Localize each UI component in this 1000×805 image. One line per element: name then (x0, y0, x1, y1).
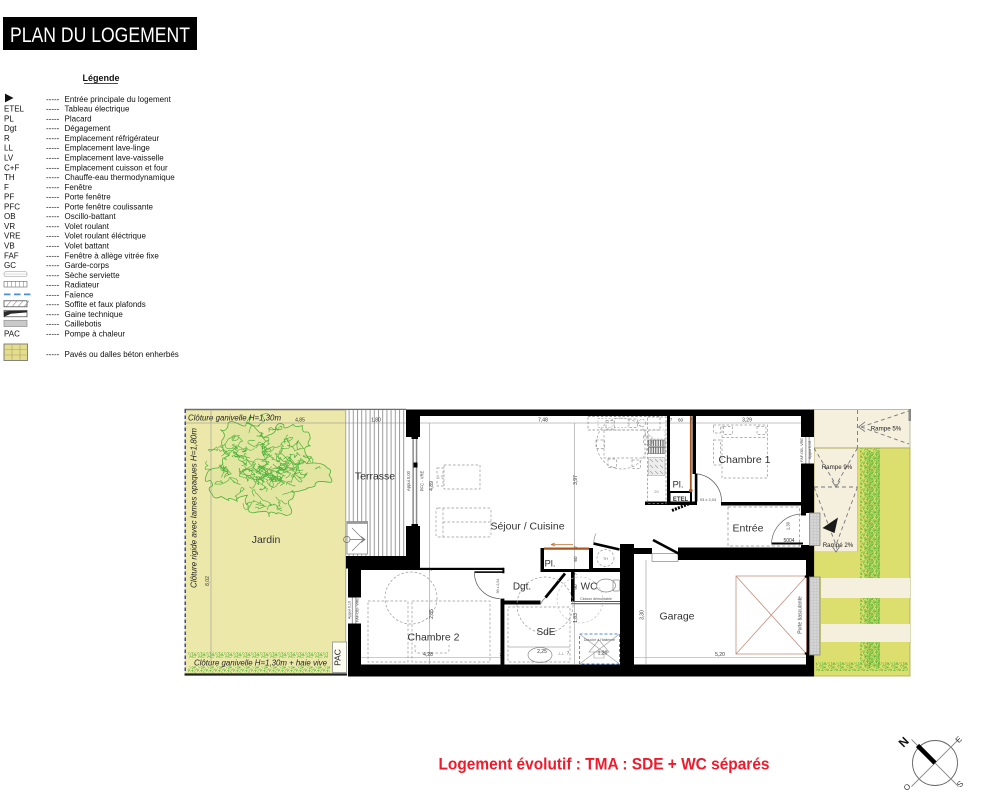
svg-text:2,25: 2,25 (537, 649, 547, 655)
svg-text:LL: LL (4, 144, 13, 153)
svg-text:Porte fenêtre: Porte fenêtre (65, 193, 112, 202)
svg-text:WC: WC (581, 582, 598, 593)
svg-text:FAF: FAF (4, 251, 19, 260)
svg-text:Appui 0,00: Appui 0,00 (406, 470, 411, 491)
svg-text:GC: GC (4, 261, 16, 270)
svg-text:-----: ----- (46, 330, 60, 339)
svg-text:Chauffe-eau thermodynamique: Chauffe-eau thermodynamique (65, 173, 176, 182)
svg-text:Emplacement cuisson et four: Emplacement cuisson et four (65, 163, 168, 172)
svg-text:Radiateur: Radiateur (65, 281, 100, 290)
svg-text:Cloison démontable: Cloison démontable (580, 597, 612, 601)
svg-text:Pl.: Pl. (544, 559, 555, 570)
svg-text:-----: ----- (46, 222, 60, 231)
svg-text:Faïence: Faïence (65, 290, 94, 299)
svg-text:-----: ----- (46, 124, 60, 133)
svg-text:Dgt: Dgt (4, 124, 17, 133)
svg-text:90: 90 (573, 584, 578, 590)
svg-text:-----: ----- (46, 290, 60, 299)
svg-text:Placard: Placard (65, 114, 92, 123)
svg-text:-----: ----- (46, 320, 60, 329)
svg-text:60: 60 (678, 418, 684, 423)
svg-text:4,85: 4,85 (295, 418, 305, 424)
svg-text:PLAN DU LOGEMENT: PLAN DU LOGEMENT (10, 24, 190, 47)
svg-text:-----: ----- (46, 153, 60, 162)
svg-text:Sèche serviette: Sèche serviette (65, 271, 121, 280)
svg-text:Pompe à chaleur: Pompe à chaleur (65, 330, 126, 339)
svg-text:PFC: PFC (4, 202, 20, 211)
svg-text:Rampe 5%: Rampe 5% (871, 426, 902, 433)
svg-text:-----: ----- (46, 193, 60, 202)
svg-text:Garage: Garage (659, 611, 694, 623)
svg-text:Douche à l’italienne: Douche à l’italienne (584, 638, 615, 642)
svg-text:Pavés ou dalles béton enherbés: Pavés ou dalles béton enherbés (65, 350, 179, 359)
svg-text:Entrée: Entrée (733, 523, 764, 535)
svg-text:Appui 0,10: Appui 0,10 (348, 601, 352, 619)
svg-text:-----: ----- (46, 310, 60, 319)
svg-text:PF: PF (4, 193, 14, 202)
svg-text:-----: ----- (46, 144, 60, 153)
svg-text:Fenêtre: Fenêtre (65, 183, 93, 192)
svg-text:TH: TH (603, 556, 608, 561)
svg-text:TH: TH (4, 173, 15, 182)
svg-text:Jardin: Jardin (252, 534, 281, 546)
svg-text:-----: ----- (46, 281, 60, 290)
svg-text:3,97: 3,97 (573, 475, 579, 485)
svg-text:FAF-OB- VRE: FAF-OB- VRE (800, 438, 804, 462)
svg-text:90 x 2,04: 90 x 2,04 (496, 579, 500, 594)
svg-text:Emplacement lave-linge: Emplacement lave-linge (65, 144, 151, 153)
svg-text:Clôture ganivelle H=1,30m + ha: Clôture ganivelle H=1,30m + haie vive (194, 658, 327, 668)
svg-text:Clôture ganivelle H=1,30m: Clôture ganivelle H=1,30m (188, 413, 281, 423)
svg-text:Volet battant: Volet battant (65, 242, 110, 251)
svg-text:Rampe 9%: Rampe 9% (822, 464, 853, 471)
svg-text:VB: VB (4, 242, 15, 251)
svg-text:1,20: 1,20 (598, 651, 608, 657)
svg-text:-----: ----- (46, 212, 60, 221)
svg-text:3,30: 3,30 (640, 610, 646, 620)
svg-text:-----: ----- (46, 251, 60, 260)
svg-text:-----: ----- (46, 183, 60, 192)
svg-text:20: 20 (654, 489, 659, 494)
svg-text:Clôture rigide avec lames opaq: Clôture rigide avec lames opaques H=1,80… (190, 428, 199, 588)
svg-text:-----: ----- (46, 261, 60, 270)
svg-text:C+F: C+F (4, 163, 19, 172)
svg-text:5,20: 5,20 (715, 652, 725, 658)
svg-text:Emplacement lave-vaisselle: Emplacement lave-vaisselle (65, 153, 165, 162)
svg-text:Chambre 2: Chambre 2 (408, 632, 460, 644)
svg-text:PAC: PAC (4, 330, 20, 339)
svg-text:LV: LV (4, 153, 14, 162)
svg-text:Appui 0,10: Appui 0,10 (808, 441, 812, 459)
svg-text:PL: PL (4, 114, 14, 123)
svg-text:ETEL: ETEL (4, 105, 25, 114)
svg-text:Soffite et faux plafonds: Soffite et faux plafonds (65, 300, 146, 309)
svg-text:-----: ----- (46, 232, 60, 241)
svg-text:-----: ----- (46, 95, 60, 104)
svg-text:1,80: 1,80 (371, 418, 381, 424)
svg-text:VRE: VRE (4, 232, 20, 241)
svg-text:F: F (4, 183, 9, 192)
svg-text:PAC: PAC (333, 649, 343, 666)
svg-text:-----: ----- (46, 242, 60, 251)
svg-text:Volet roulant éléctrique: Volet roulant éléctrique (65, 232, 147, 241)
svg-text:Logement évolutif : TMA : SDE: Logement évolutif : TMA : SDE + WC sépar… (439, 755, 770, 774)
svg-text:Porte fenêtre coulissante: Porte fenêtre coulissante (65, 202, 154, 211)
svg-text:-----: ----- (46, 350, 60, 359)
svg-text:60: 60 (573, 556, 578, 562)
svg-text:2,85: 2,85 (429, 609, 435, 619)
svg-text:Emplacement réfrigérateur: Emplacement réfrigérateur (65, 134, 160, 143)
svg-text:7,48: 7,48 (538, 418, 548, 424)
svg-text:Chambre 1: Chambre 1 (719, 454, 771, 466)
svg-text:-----: ----- (46, 300, 60, 309)
svg-text:4,89: 4,89 (429, 481, 435, 491)
svg-text:R: R (4, 134, 10, 143)
svg-text:Oscillo-battant: Oscillo-battant (65, 212, 117, 221)
svg-text:OB: OB (4, 212, 16, 221)
svg-text:Porte basculante: Porte basculante (798, 596, 804, 634)
svg-text:Entrée principale du logement: Entrée principale du logement (65, 95, 172, 104)
svg-text:ETEL: ETEL (673, 497, 689, 503)
svg-text:FAF-OB- VRE: FAF-OB- VRE (356, 598, 360, 622)
svg-text:-----: ----- (46, 202, 60, 211)
svg-text:PFC - VRE: PFC - VRE (420, 470, 425, 491)
svg-text:Dgt.: Dgt. (513, 582, 531, 593)
svg-text:-----: ----- (46, 173, 60, 182)
svg-text:-----: ----- (46, 163, 60, 172)
svg-text:VR: VR (4, 222, 15, 231)
svg-text:SdE: SdE (537, 627, 556, 638)
svg-text:3,29: 3,29 (742, 418, 752, 424)
svg-text:Volet roulant: Volet roulant (65, 222, 110, 231)
svg-text:Pl.: Pl. (672, 480, 683, 491)
svg-text:-----: ----- (46, 114, 60, 123)
svg-text:Séjour / Cuisine: Séjour / Cuisine (490, 521, 564, 533)
svg-text:8,02: 8,02 (205, 576, 211, 586)
svg-text:Dégagement: Dégagement (65, 124, 112, 133)
svg-text:4,28: 4,28 (423, 652, 433, 658)
svg-text:Légende: Légende (82, 73, 119, 83)
svg-text:Terrasse: Terrasse (355, 471, 395, 483)
svg-text:-----: ----- (46, 105, 60, 114)
svg-text:1,30: 1,30 (786, 521, 791, 530)
svg-text:1,83: 1,83 (573, 613, 579, 623)
svg-text:93 x 2,04: 93 x 2,04 (700, 497, 717, 502)
svg-text:-----: ----- (46, 271, 60, 280)
svg-text:Rampé 2%: Rampé 2% (823, 542, 854, 549)
svg-text:⊥⊥: ⊥⊥ (558, 652, 565, 656)
svg-text:Garde-corps: Garde-corps (65, 261, 109, 270)
svg-text:5004: 5004 (783, 538, 794, 544)
svg-text:-----: ----- (46, 134, 60, 143)
svg-text:Gaine technique: Gaine technique (65, 310, 124, 319)
svg-text:Tableau électrique: Tableau électrique (65, 105, 130, 114)
svg-text:Caillebotis: Caillebotis (65, 320, 102, 329)
svg-text:Fenêtre à allège vitrée fixe: Fenêtre à allège vitrée fixe (65, 251, 160, 260)
